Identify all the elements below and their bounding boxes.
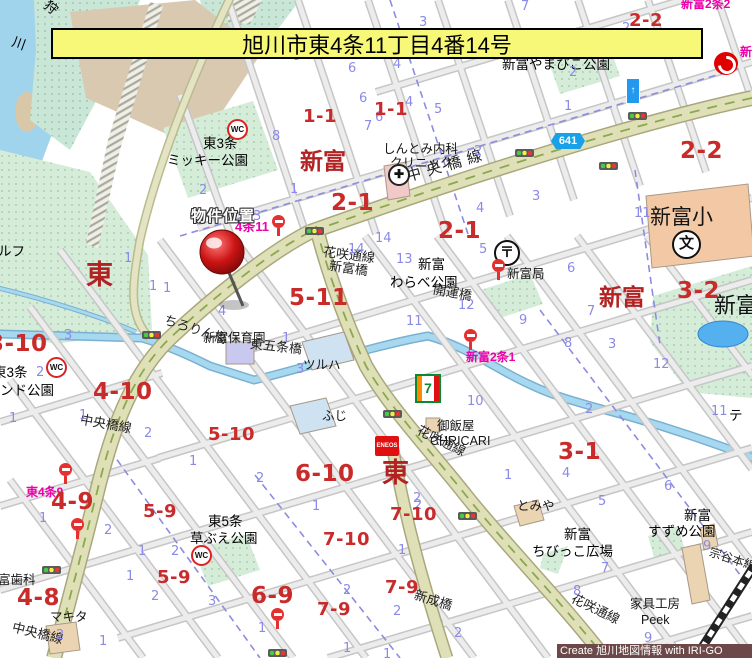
school-icon: 文: [672, 230, 701, 259]
busstop-label-shintomi2jo1: 新富2条1: [466, 351, 515, 363]
lot-number: 8: [573, 585, 581, 598]
block-number: 5-11: [289, 287, 349, 310]
district-label-shintomi-2: 新富: [599, 286, 645, 309]
lot-number: 1: [39, 512, 47, 525]
store-label-makita: マキタ: [50, 611, 88, 624]
block-number: 7-9: [317, 601, 351, 619]
bus-stop-icon: [59, 463, 72, 476]
park-label-chibikko2: ちびっこ広場: [532, 545, 613, 559]
park-label-higashi3-2: ンド公園: [0, 384, 54, 398]
traffic-light-icon: [515, 149, 534, 157]
toilet-icon: WC: [191, 545, 212, 566]
one-way-sign-icon: ↑: [626, 78, 640, 104]
park-label-higashi3-1: 東3条: [0, 366, 28, 380]
traffic-light-icon: [628, 112, 647, 120]
lot-number: 1: [79, 409, 87, 422]
lot-number: 8: [564, 337, 572, 350]
property-pin[interactable]: [180, 218, 270, 328]
address-banner: 旭川市東4条11丁目4番14号: [51, 28, 703, 59]
lot-number: 1: [343, 642, 351, 655]
restaurant-label-line1: 御飯屋: [437, 420, 475, 433]
lot-number: 3: [296, 363, 304, 376]
lot-number: 5: [479, 243, 487, 256]
lot-number: 2: [151, 590, 159, 603]
toilet-icon: WC: [46, 357, 67, 378]
traffic-light-icon: [458, 512, 477, 520]
park-label-warabe1: 新富: [418, 258, 445, 272]
bridge-label-higashigojo: 東五条橋: [249, 337, 265, 353]
block-number: 7-9: [385, 579, 419, 597]
lot-number: 1: [398, 544, 406, 557]
busstop-label-clipped: 新富: [740, 46, 752, 58]
block-number: 7-10: [323, 531, 370, 549]
bus-stop-icon: [272, 215, 285, 228]
bus-company-icon: [714, 52, 738, 75]
traffic-light-icon: [599, 162, 618, 170]
lot-number: 4: [476, 202, 484, 215]
lot-number: 2: [474, 145, 482, 158]
lot-number: 1: [383, 648, 391, 658]
lot-number: 1: [124, 252, 132, 265]
lot-number: 6: [664, 480, 672, 493]
park-label-suzume2: すずめ公園: [648, 525, 716, 539]
block-number: 3-2: [677, 280, 720, 303]
lot-number: 6: [359, 92, 367, 105]
lot-number: 1: [312, 500, 320, 513]
lot-number: 14: [375, 232, 392, 245]
lot-number: 3: [208, 595, 216, 608]
clinic-label-line1: しんとみ内科: [383, 143, 458, 156]
lot-number: 2: [585, 403, 593, 416]
lot-number: 9: [519, 314, 527, 327]
lot-number: 1: [290, 183, 298, 196]
lot-number: 2: [199, 184, 207, 197]
lot-number: 2: [343, 584, 351, 597]
park-label-chibikko1: 新富: [564, 528, 591, 542]
block-number: 3-1: [558, 441, 601, 464]
lot-number: 14: [348, 243, 365, 256]
lot-number: 6: [348, 62, 356, 75]
lot-number: 3: [608, 338, 616, 351]
traffic-light-icon: [383, 410, 402, 418]
traffic-light-icon: [42, 566, 61, 574]
bus-stop-icon: [71, 518, 84, 531]
lot-number: 2: [454, 627, 462, 640]
lot-number: 10: [467, 395, 484, 408]
lot-number: 13: [396, 253, 413, 266]
block-number: 6-9: [251, 585, 294, 608]
lot-number: 7: [601, 562, 609, 575]
lot-number: 2: [393, 605, 401, 618]
toilet-icon: WC: [227, 119, 248, 140]
bridge-label-shintomi: 新富橋: [328, 259, 345, 275]
lot-number: 1: [258, 622, 266, 635]
bus-stop-icon: [271, 608, 284, 621]
bridge-label-kaiun: 開運橋: [432, 283, 449, 300]
park-label-suzume1: 新富: [684, 509, 711, 523]
lot-number: 1: [99, 635, 107, 648]
bus-stop-icon: [464, 329, 477, 342]
lot-number: 4: [393, 58, 401, 71]
seven-eleven-icon: 7: [415, 374, 441, 403]
lot-number: 1: [163, 282, 171, 295]
park-label-mickey2: ミッキー公園: [167, 154, 248, 168]
lot-number: 1: [138, 545, 146, 558]
lot-number: 1: [504, 469, 512, 482]
workshop-label-line1: 家具工房: [630, 598, 680, 611]
block-number: 1-1: [374, 101, 408, 119]
lot-number: 9: [703, 540, 711, 553]
block-number: 1-1: [303, 108, 337, 126]
block-number: 7-10: [390, 506, 437, 524]
lot-number: 7: [521, 0, 529, 13]
gas-station-icon: ENEOS: [375, 436, 399, 456]
park-label-yamabiko: 新富やまびこ公園: [502, 58, 610, 72]
bus-stop-icon: [492, 259, 505, 272]
lot-number: 2: [56, 629, 64, 642]
lot-number: 12: [653, 358, 670, 371]
traffic-light-icon: [142, 331, 161, 339]
lot-number: 6: [567, 262, 575, 275]
block-number: 2-1: [331, 192, 374, 215]
district-label-higashi-1: 東: [86, 262, 113, 289]
workshop-label-line2: Peek: [641, 614, 670, 627]
lot-number: 2: [144, 427, 152, 440]
block-number: 3-10: [0, 333, 48, 356]
district-label-higashi-2: 東: [382, 460, 409, 487]
lot-number: 1: [282, 332, 290, 345]
lot-number: 7: [587, 305, 595, 318]
place-label-fuji: ふじ: [322, 410, 347, 423]
lot-number: 11: [634, 207, 651, 220]
store-label-tsuruha: ツルハ: [303, 359, 341, 372]
block-number: 6-10: [295, 463, 355, 486]
lot-number: 2: [171, 545, 179, 558]
park-label-kusabue1: 東5条: [208, 515, 243, 529]
lot-number: 12: [458, 299, 475, 312]
block-number: 4-9: [51, 491, 94, 514]
lot-number: 8: [272, 130, 280, 143]
school-label: 新富小: [650, 207, 713, 228]
block-number: 5-9: [157, 569, 191, 587]
lot-number: 1: [564, 100, 572, 113]
block-number: 2-2: [680, 140, 723, 163]
traffic-light-icon: [268, 649, 287, 657]
lot-number: 11: [711, 405, 728, 418]
lot-number: 2: [36, 366, 44, 379]
lot-number: 3: [64, 329, 72, 342]
lot-number: 1: [126, 570, 134, 583]
store-label-tomiya: とみや: [517, 500, 555, 513]
block-number: 4-10: [93, 381, 153, 404]
block-number: 2-1: [438, 220, 481, 243]
lot-number: 2: [104, 524, 112, 537]
lot-number: 4: [562, 467, 570, 480]
busstop-label-shintomi2jo2: 新富2条2: [681, 0, 730, 10]
route-641-badge: 641: [551, 133, 585, 149]
lot-number: 7: [364, 120, 372, 133]
map-canvas[interactable]: 新富やまびこ公園 しんとみ内科 クリニック 東3条 ミッキー公園 新富 わらべ公…: [0, 0, 752, 658]
block-number: 5-10: [208, 426, 255, 444]
credit-bar: Create 旭川地図情報 with IRI-GO: [557, 644, 752, 658]
lot-number: 5: [598, 495, 606, 508]
post-office-label: 新富局: [507, 268, 545, 281]
block-number: 4-8: [17, 587, 60, 610]
golf-label: ルフ: [0, 245, 25, 259]
lot-number: 1: [149, 280, 157, 293]
hospital-icon: ✚: [388, 164, 410, 186]
label-te: テ: [729, 409, 743, 423]
lot-number: 2: [256, 472, 264, 485]
district-label-shintomi-1: 新富: [300, 150, 346, 173]
lot-number: 2: [569, 66, 577, 79]
park-pond: [698, 321, 748, 347]
lot-number: 1: [9, 412, 17, 425]
traffic-light-icon: [305, 227, 324, 235]
lot-number: 11: [406, 315, 423, 328]
lot-number: 1: [189, 455, 197, 468]
lot-number: 5: [434, 103, 442, 116]
block-number: 5-9: [143, 503, 177, 521]
lot-number: 3: [532, 190, 540, 203]
park-label-kusabue2: 草ぶえ公園: [190, 532, 258, 546]
